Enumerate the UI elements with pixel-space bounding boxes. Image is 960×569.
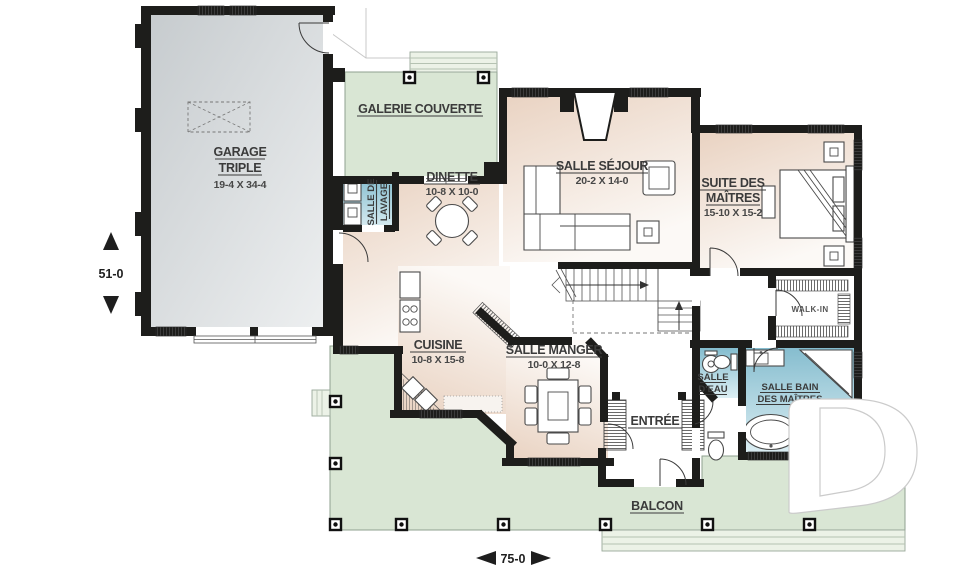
sejour-dims: 20-2 X 14-0	[576, 175, 629, 187]
dinette-dims: 10-8 X 10-0	[426, 186, 479, 198]
suite-label: SUITE DES	[701, 176, 764, 190]
cuisine-dims: 10-8 X 15-8	[412, 354, 465, 366]
post	[600, 519, 611, 530]
floor-plan-page: GARAGE TRIPLE 19-4 X 34-4 GALERIE COUVER…	[0, 0, 960, 569]
eau-label: SALLE	[697, 372, 728, 383]
stove	[400, 300, 420, 332]
svg-text:LAVAGE: LAVAGE	[379, 183, 390, 221]
walkin-label: WALK-IN	[791, 305, 828, 314]
toilet-tank	[731, 354, 737, 370]
post	[498, 519, 509, 530]
post	[330, 519, 341, 530]
garage-dims: 19-4 X 34-4	[214, 179, 267, 191]
height-dimension: 51-0	[98, 267, 123, 281]
manger-dims: 10-0 X 12-8	[528, 359, 581, 371]
post	[330, 396, 341, 407]
sejour-label: SALLE SÉJOUR	[556, 158, 649, 173]
up-arrow-icon	[103, 232, 119, 250]
garage-label: GARAGE	[213, 145, 266, 159]
left-arrow-icon	[476, 551, 496, 565]
post	[804, 519, 815, 530]
cuisine-label: CUISINE	[414, 338, 463, 352]
post	[330, 458, 341, 469]
post	[396, 519, 407, 530]
master-bed	[780, 166, 854, 242]
eau-label2: D'EAU	[698, 384, 727, 395]
dresser	[762, 186, 775, 218]
bath-toilet-bowl	[709, 440, 724, 460]
counter	[444, 396, 502, 412]
bath-toilet-tank	[708, 432, 724, 438]
covered-gallery-floor	[345, 72, 497, 178]
down-arrow-icon	[103, 296, 119, 314]
bain-label: SALLE BAIN	[762, 382, 819, 393]
stairs	[552, 267, 700, 333]
svg-text:SALLE DE: SALLE DE	[366, 179, 377, 226]
balcon-label: BALCON	[631, 499, 683, 513]
entree-label: ENTRÉE	[631, 413, 680, 428]
refrigerator	[400, 272, 420, 298]
width-dimension: 75-0	[500, 552, 525, 566]
dinette-label: DINETTE	[426, 170, 477, 184]
suite-dims: 15-10 X 15-2	[704, 207, 763, 219]
side-steps	[312, 390, 330, 416]
side-table	[637, 221, 659, 243]
toilet-bowl	[714, 356, 730, 369]
room-floors	[147, 12, 856, 460]
balcony-steps	[602, 530, 905, 551]
post	[478, 72, 489, 83]
post	[702, 519, 713, 530]
galerie-label: GALERIE COUVERTE	[358, 102, 482, 116]
post	[404, 72, 415, 83]
garage-label2: TRIPLE	[219, 161, 262, 175]
right-arrow-icon	[531, 551, 551, 565]
manger-label: SALLE MANGER	[506, 343, 603, 357]
floor-plan-drawing: GARAGE TRIPLE 19-4 X 34-4 GALERIE COUVER…	[0, 0, 960, 569]
suite-label2: MAÎTRES	[706, 190, 760, 205]
